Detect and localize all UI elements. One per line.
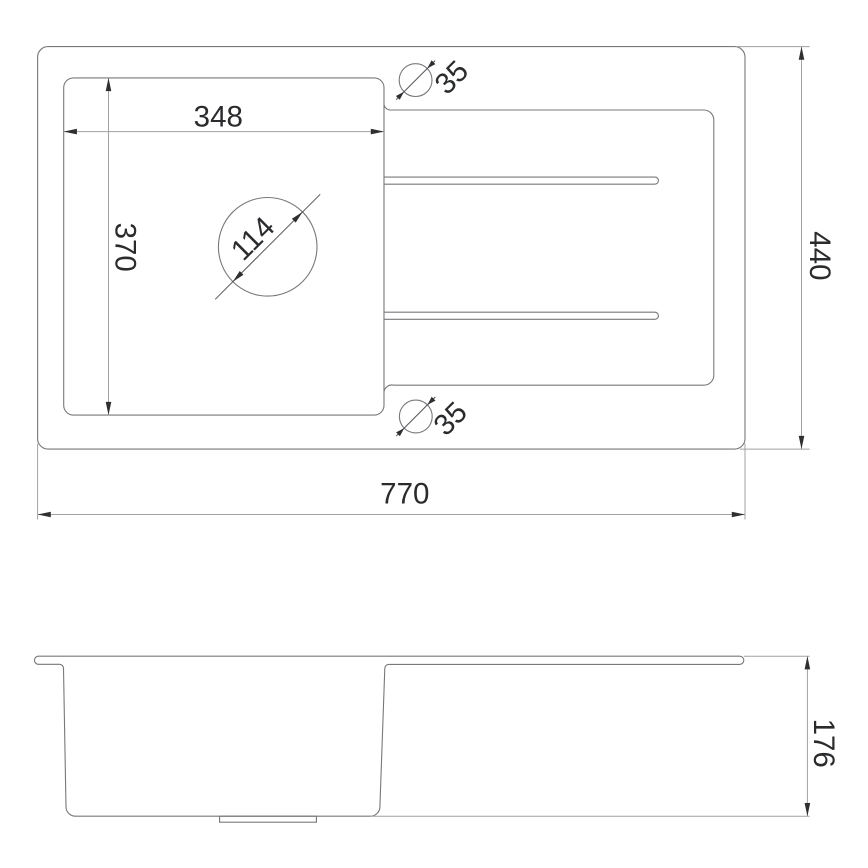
svg-text:440: 440 xyxy=(803,231,836,280)
svg-text:770: 770 xyxy=(380,478,429,511)
svg-text:176: 176 xyxy=(807,719,840,768)
svg-text:348: 348 xyxy=(194,101,243,134)
svg-text:35: 35 xyxy=(429,54,476,101)
svg-text:35: 35 xyxy=(427,396,474,443)
svg-text:370: 370 xyxy=(108,223,141,272)
svg-text:114: 114 xyxy=(225,210,282,267)
